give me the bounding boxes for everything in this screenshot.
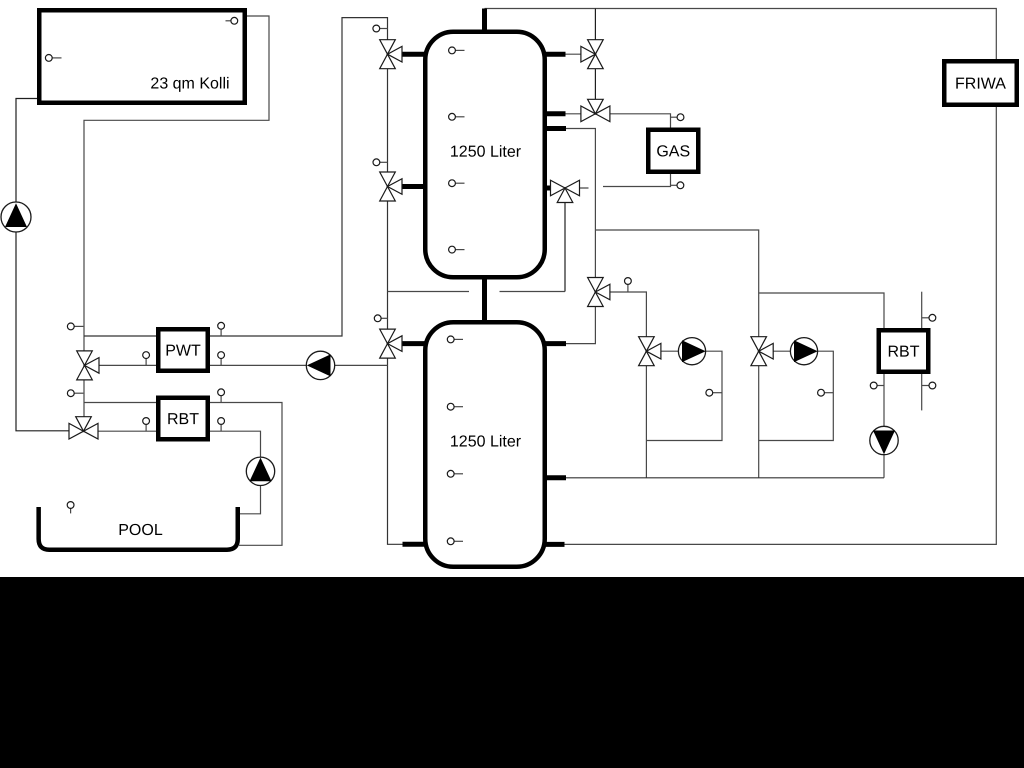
svg-text:23 qm Kolli: 23 qm Kolli [150,75,229,92]
svg-text:RBT: RBT [887,344,919,361]
svg-text:FRIWA: FRIWA [955,76,1006,93]
svg-text:RBT: RBT [167,411,199,428]
svg-text:1250 Liter: 1250 Liter [450,433,522,450]
svg-text:POOL: POOL [118,522,163,539]
svg-text:GAS: GAS [656,143,690,160]
svg-text:PWT: PWT [165,343,201,360]
svg-text:1250 Liter: 1250 Liter [450,144,522,161]
